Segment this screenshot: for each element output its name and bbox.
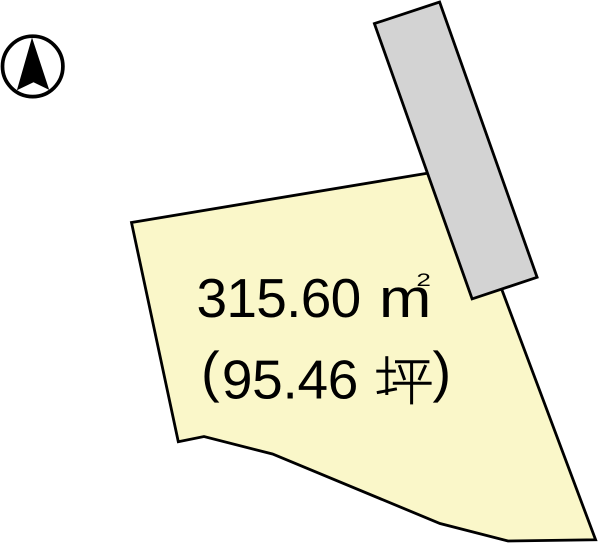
svg-text:315.60: 315.60 bbox=[197, 267, 361, 329]
svg-text:2: 2 bbox=[416, 270, 431, 290]
svg-text:): ) bbox=[433, 340, 452, 403]
svg-text:95.46: 95.46 bbox=[222, 349, 358, 411]
svg-text:(: ( bbox=[201, 340, 220, 403]
